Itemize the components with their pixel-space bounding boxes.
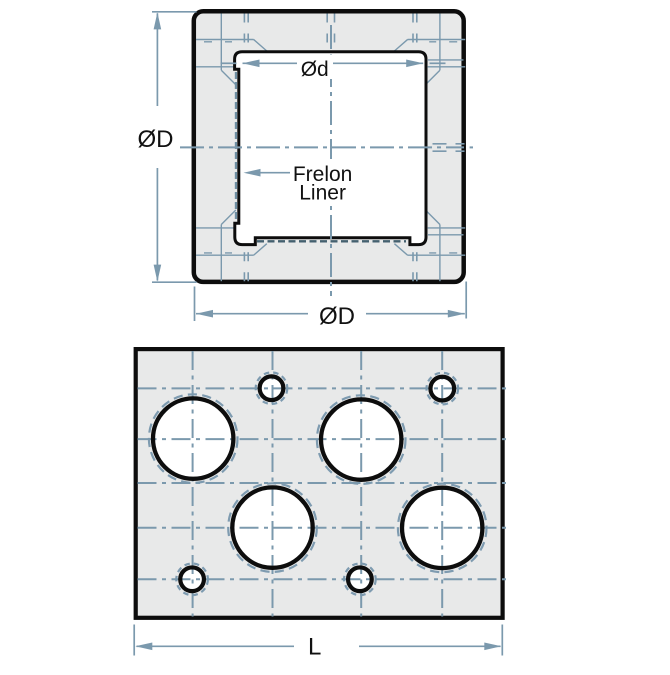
- svg-text:ØD: ØD: [138, 126, 174, 153]
- svg-text:ØD: ØD: [319, 303, 355, 330]
- svg-text:L: L: [308, 634, 321, 661]
- svg-text:Ød: Ød: [301, 58, 329, 81]
- svg-text:Liner: Liner: [299, 182, 346, 205]
